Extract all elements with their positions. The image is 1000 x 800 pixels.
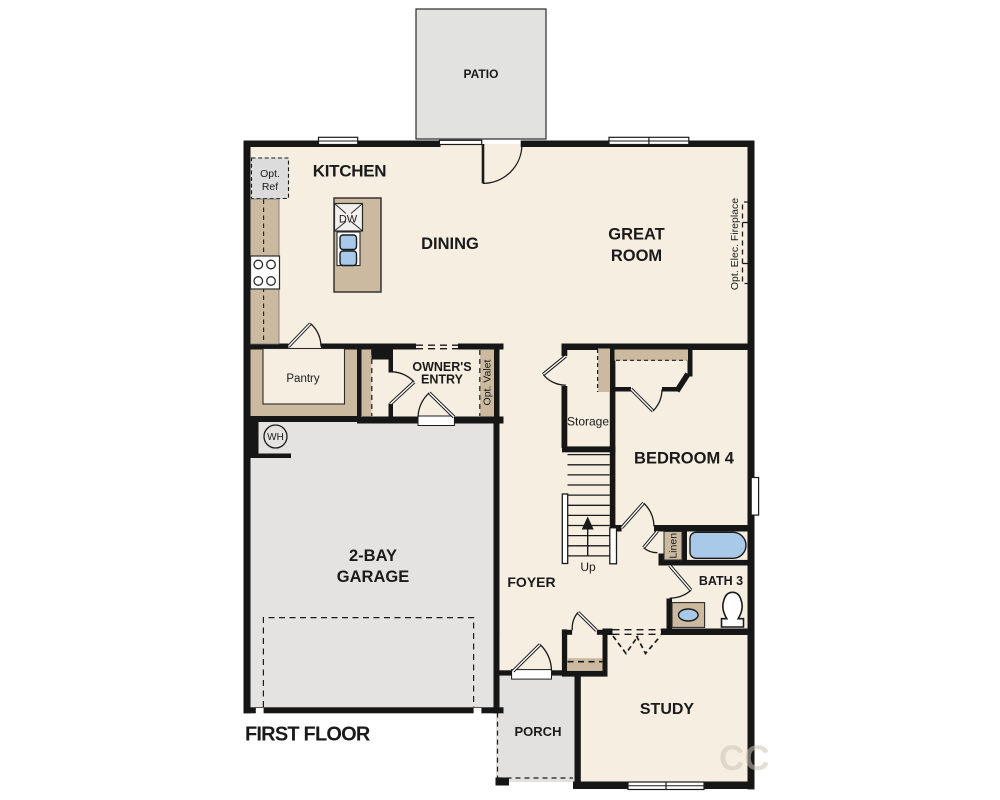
- svg-text:GREAT: GREAT: [608, 226, 665, 244]
- svg-text:Opt. Elec. Fireplace: Opt. Elec. Fireplace: [729, 198, 741, 290]
- svg-text:2-BAY: 2-BAY: [349, 547, 397, 565]
- svg-text:Pantry: Pantry: [286, 373, 319, 385]
- svg-text:WH: WH: [267, 432, 284, 443]
- svg-text:GARAGE: GARAGE: [337, 568, 409, 586]
- svg-text:BEDROOM 4: BEDROOM 4: [634, 450, 735, 468]
- svg-text:Ref: Ref: [262, 181, 278, 193]
- svg-text:Storage: Storage: [567, 415, 609, 429]
- svg-text:DW: DW: [339, 214, 358, 226]
- svg-text:KITCHEN: KITCHEN: [313, 162, 386, 181]
- svg-text:STUDY: STUDY: [640, 701, 695, 718]
- svg-text:BATH 3: BATH 3: [699, 574, 743, 588]
- svg-text:Opt.: Opt.: [260, 168, 280, 180]
- svg-text:PORCH: PORCH: [515, 724, 562, 739]
- svg-text:Up: Up: [580, 560, 596, 574]
- svg-text:ENTRY: ENTRY: [421, 373, 464, 387]
- svg-text:FOYER: FOYER: [507, 574, 555, 590]
- svg-text:CC: CC: [719, 739, 770, 778]
- svg-text:Opt. Valet: Opt. Valet: [482, 359, 494, 405]
- svg-text:ROOM: ROOM: [611, 247, 662, 265]
- svg-text:PATIO: PATIO: [464, 67, 499, 81]
- svg-text:FIRST FLOOR: FIRST FLOOR: [245, 724, 371, 746]
- svg-text:Linen: Linen: [668, 533, 680, 559]
- svg-text:DINING: DINING: [421, 235, 479, 253]
